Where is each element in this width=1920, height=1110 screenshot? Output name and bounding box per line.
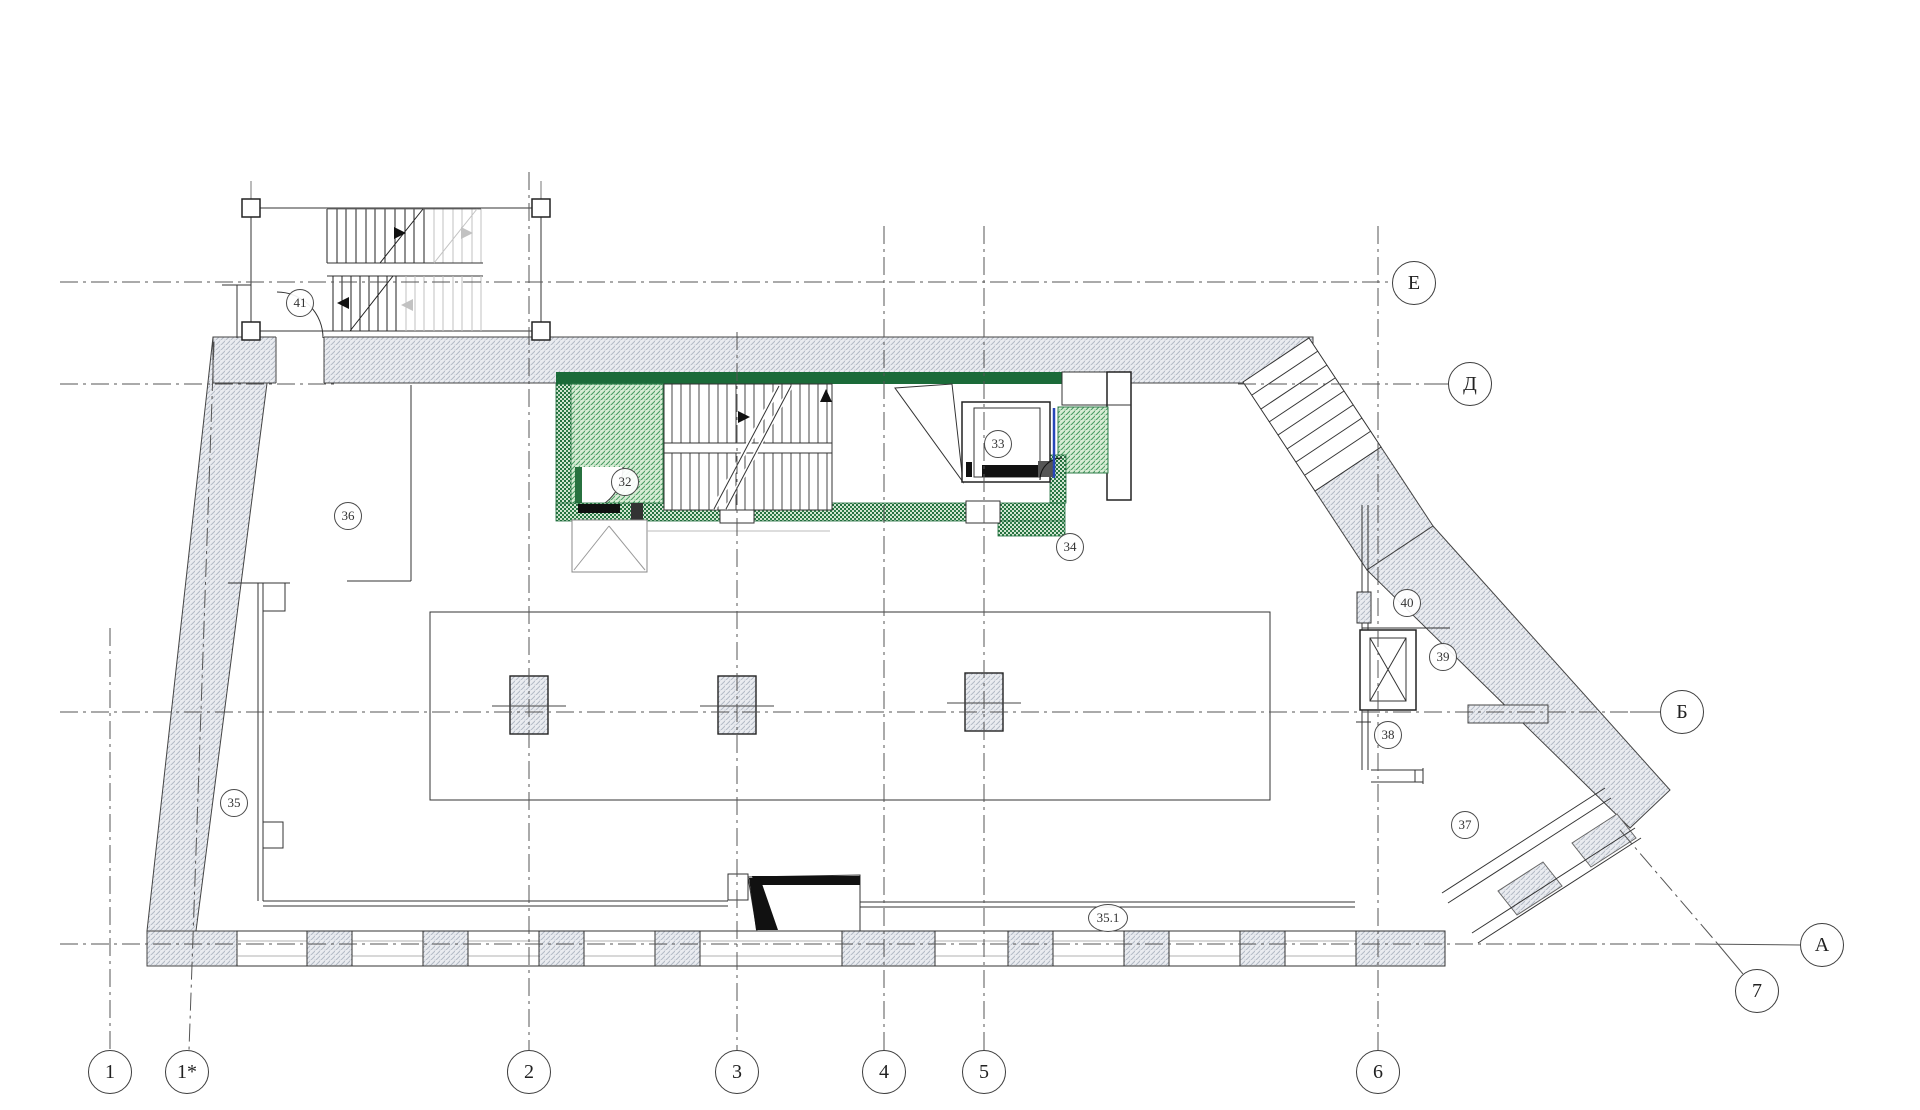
axis-circle-1-star: 1* (165, 1050, 209, 1094)
bottom-right-entrance-steps (1442, 788, 1641, 943)
axis-circle-b: Б (1660, 690, 1704, 734)
room-circle-34: 34 (1056, 533, 1084, 561)
axis-circle-1: 1 (88, 1050, 132, 1094)
room-circle-35: 35 (220, 789, 248, 817)
axis-circle-7: 7 (1735, 969, 1779, 1013)
axis-circle-6: 6 (1356, 1050, 1400, 1094)
room-circle-37: 37 (1451, 811, 1479, 839)
room-circle-33: 33 (984, 430, 1012, 458)
axis-circle-e: Е (1392, 261, 1436, 305)
right-exterior-staircase (1243, 338, 1670, 828)
plan-linework (0, 0, 1920, 1110)
central-hall (430, 612, 1270, 800)
top-left-staircase (222, 181, 550, 340)
axis-circle-3: 3 (715, 1050, 759, 1094)
axis-circle-a: А (1800, 923, 1844, 967)
floor-plan-canvas: 1 1* 2 3 4 5 6 7 Е Д Б А 32 33 34 35 35.… (0, 0, 1920, 1110)
bottom-facade-band (237, 931, 1445, 966)
axis-circle-5: 5 (962, 1050, 1006, 1094)
room-circle-40: 40 (1393, 589, 1421, 617)
axis-circle-4: 4 (862, 1050, 906, 1094)
room-circle-41: 41 (286, 289, 314, 317)
room-circle-32: 32 (611, 468, 639, 496)
green-stair-zone (556, 372, 1131, 572)
axis-circle-2: 2 (507, 1050, 551, 1094)
room-circle-36: 36 (334, 502, 362, 530)
room-circle-38: 38 (1374, 721, 1402, 749)
main-entrance-vestibule (728, 874, 860, 931)
room-circle-35-1: 35.1 (1088, 904, 1128, 932)
axis-circle-d: Д (1448, 362, 1492, 406)
room-circle-39: 39 (1429, 643, 1457, 671)
